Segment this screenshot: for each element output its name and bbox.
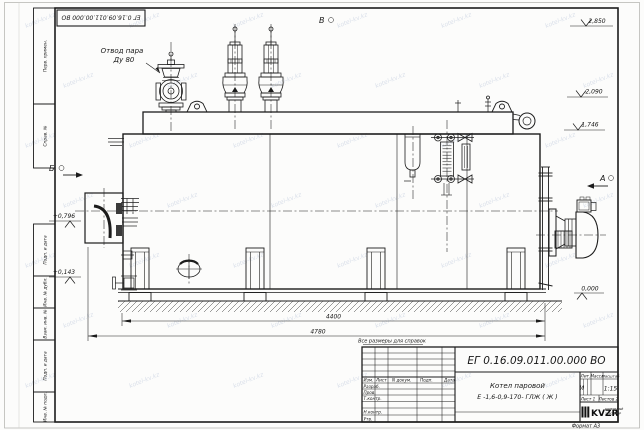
company-logo: KVZR КОТЕЛЬНЫЙ ЗАВОД РЗР: [582, 406, 625, 419]
watermark-text: kotel-kv.kz: [270, 71, 303, 90]
watermark-text: kotel-kv.kz: [62, 71, 95, 90]
watermark-text: kotel-kv.kz: [128, 371, 161, 390]
row-razrab: Разраб.: [364, 384, 380, 389]
col-podp: Подп.: [420, 377, 433, 382]
view-label-v: В: [319, 16, 325, 25]
support-leg: [505, 248, 527, 301]
watermark-text: kotel-kv.kz: [374, 191, 407, 210]
margin-stamp-label: Взам. инв. №: [43, 309, 49, 339]
watermark-text: kotel-kv.kz: [478, 71, 511, 90]
lit-header: Лит.: [580, 373, 591, 378]
format-label: Формат А3: [572, 424, 600, 430]
margin-stamps: Перв. примен. Справ. № Подп. и дата Инв.…: [34, 8, 56, 422]
drawing-sheet: kotel-kv.kzkotel-kv.kzkotel-kv.kzkotel-k…: [0, 0, 644, 430]
row-tkontr: Т.контр.: [364, 396, 382, 401]
margin-stamp-label: Подп. и дата: [43, 351, 49, 381]
watermark-text: kotel-kv.kz: [232, 11, 265, 30]
scale-value: 1:15: [604, 386, 618, 393]
sheets-label: Листов 2: [598, 397, 619, 402]
margin-stamp-label: Инв. № подл.: [43, 392, 49, 422]
margin-stamp-label: Подп. и дата: [43, 235, 49, 265]
titleblock-product-type: Е -1,6-0,9-170- ГЛЖ ( Ж ): [477, 394, 557, 401]
margin-stamp-label: Инв. № дубл.: [43, 277, 49, 306]
watermark-text: kotel-kv.kz: [232, 371, 265, 390]
watermark-text: kotel-kv.kz: [582, 311, 615, 330]
steam-drum: [143, 112, 513, 134]
watermark-text: kotel-kv.kz: [24, 11, 57, 30]
support-leg: [365, 248, 387, 301]
downcomer-pipe: [513, 113, 535, 129]
elevation-ground: 0,000: [581, 286, 598, 293]
burner-assembly: [536, 197, 606, 258]
elevation-top: 2,850: [588, 18, 605, 25]
lifting-lug: [187, 101, 207, 112]
ground-hatch: [118, 301, 562, 312]
watermark-text: kotel-kv.kz: [24, 251, 57, 270]
corner-doc-number: ЕГ 0.16.09.011.00.000 ВО: [61, 14, 140, 21]
watermark-text: kotel-kv.kz: [270, 311, 303, 330]
view-label-a: А: [599, 174, 605, 183]
watermark-text: kotel-kv.kz: [374, 311, 407, 330]
watermark-text: kotel-kv.kz: [336, 11, 369, 30]
row-nkontr: Н.контр.: [364, 410, 383, 415]
steam-outlet-label-1: Отвод пара: [101, 47, 144, 55]
watermark-text: kotel-kv.kz: [374, 71, 407, 90]
watermark-text: kotel-kv.kz: [544, 11, 577, 30]
safety-valve: [259, 24, 284, 130]
col-data: Дата: [443, 377, 455, 382]
row-prov: Пров.: [364, 390, 376, 395]
col-ndoc: N докум.: [392, 377, 411, 382]
lifting-lug: [492, 101, 512, 112]
watermark-text: kotel-kv.kz: [166, 191, 199, 210]
watermark-text: kotel-kv.kz: [232, 251, 265, 270]
reference-note: Все размеры для справок: [358, 339, 426, 345]
sheet-label: Лист 1: [580, 397, 596, 402]
view-label-b: Б: [49, 164, 55, 173]
boiler-body: [123, 134, 540, 289]
company-line2: ЗАВОД РЗР: [605, 412, 621, 416]
watermark-text: kotel-kv.kz: [478, 311, 511, 330]
watermark-text: kotel-kv.kz: [24, 131, 57, 150]
margin-stamp-label: Справ. №: [43, 125, 49, 146]
dimension-inner: 4400: [326, 314, 341, 321]
row-utv: Утв.: [364, 416, 373, 421]
manhole: [176, 259, 202, 279]
watermark-text: kotel-kv.kz: [336, 251, 369, 270]
watermark-text: kotel-kv.kz: [62, 311, 95, 330]
watermark-text: kotel-kv.kz: [440, 11, 473, 30]
steam-outlet-label-2: Ду 80: [113, 56, 135, 64]
watermark-text: kotel-kv.kz: [440, 251, 473, 270]
col-izm: Изм.: [364, 377, 374, 382]
safety-valve: [223, 24, 248, 130]
titleblock-product-name: Котел паровой: [490, 382, 545, 390]
elevation-left-upper: +0,796: [53, 213, 75, 220]
watermark-text: kotel-kv.kz: [24, 371, 57, 390]
watermark-text: kotel-kv.kz: [270, 191, 303, 210]
company-line1: КОТЕЛЬНЫЙ: [605, 406, 624, 411]
watermark-text: kotel-kv.kz: [544, 131, 577, 150]
watermark-text: kotel-kv.kz: [478, 191, 511, 210]
view-markers: Б В А Отвод пара Ду 80: [49, 16, 614, 189]
steam-outlet-callout: Отвод пара Ду 80: [101, 47, 160, 73]
margin-stamp-label: Перв. примен.: [43, 40, 49, 72]
dimensions: 4400 4780: [88, 247, 545, 341]
scale-header: Масштаб: [601, 373, 620, 378]
water-level-gauge: [404, 134, 474, 196]
lit-value: И: [580, 385, 585, 392]
watermark-text: kotel-kv.kz: [62, 191, 95, 210]
title-block: ЕГ 0.16.09.011.00.000 ВО Котел паровой Е…: [362, 347, 624, 422]
titleblock-doc-number: ЕГ 0.16.09.011.00.000 ВО: [467, 355, 605, 367]
watermark-text: kotel-kv.kz: [544, 371, 577, 390]
elevation-drum: 2,090: [585, 89, 602, 96]
elevation-body-top: 1,746: [581, 122, 598, 129]
watermark-text: kotel-kv.kz: [582, 71, 615, 90]
watermark-text: kotel-kv.kz: [166, 311, 199, 330]
elevation-left-lower: +0,143: [53, 269, 75, 276]
col-list: Лист: [375, 377, 387, 382]
drum-fittings: [455, 96, 491, 112]
dimension-overall: 4780: [310, 329, 325, 336]
